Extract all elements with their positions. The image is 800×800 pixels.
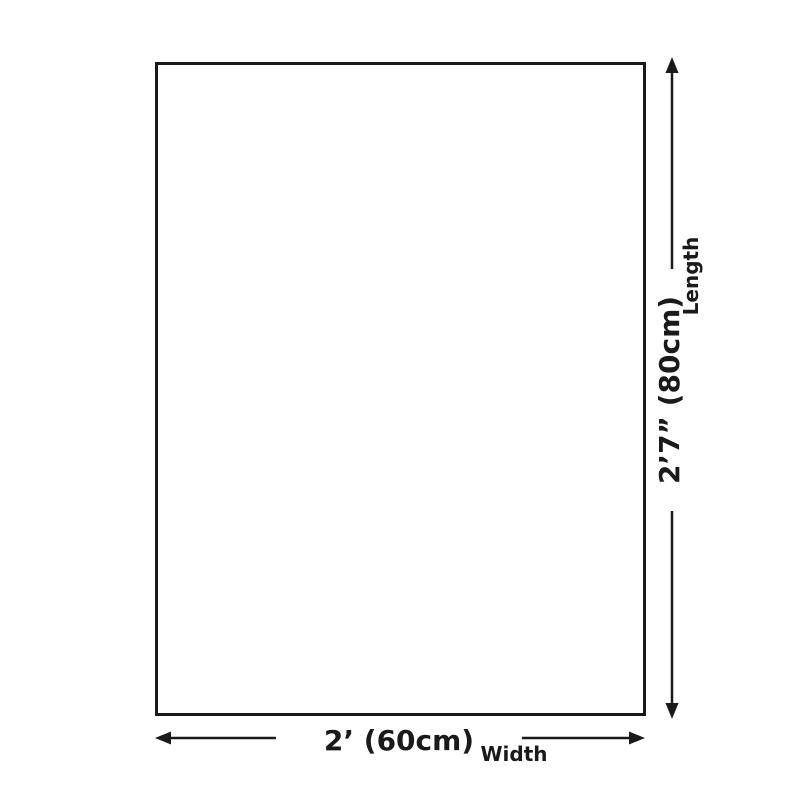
- width-label: Width: [480, 744, 547, 764]
- length-label: Length: [681, 237, 701, 316]
- product-rectangle: [155, 62, 646, 716]
- dimension-diagram: 2’7” (80cm) Length 2’ (60cm) Width: [0, 0, 800, 800]
